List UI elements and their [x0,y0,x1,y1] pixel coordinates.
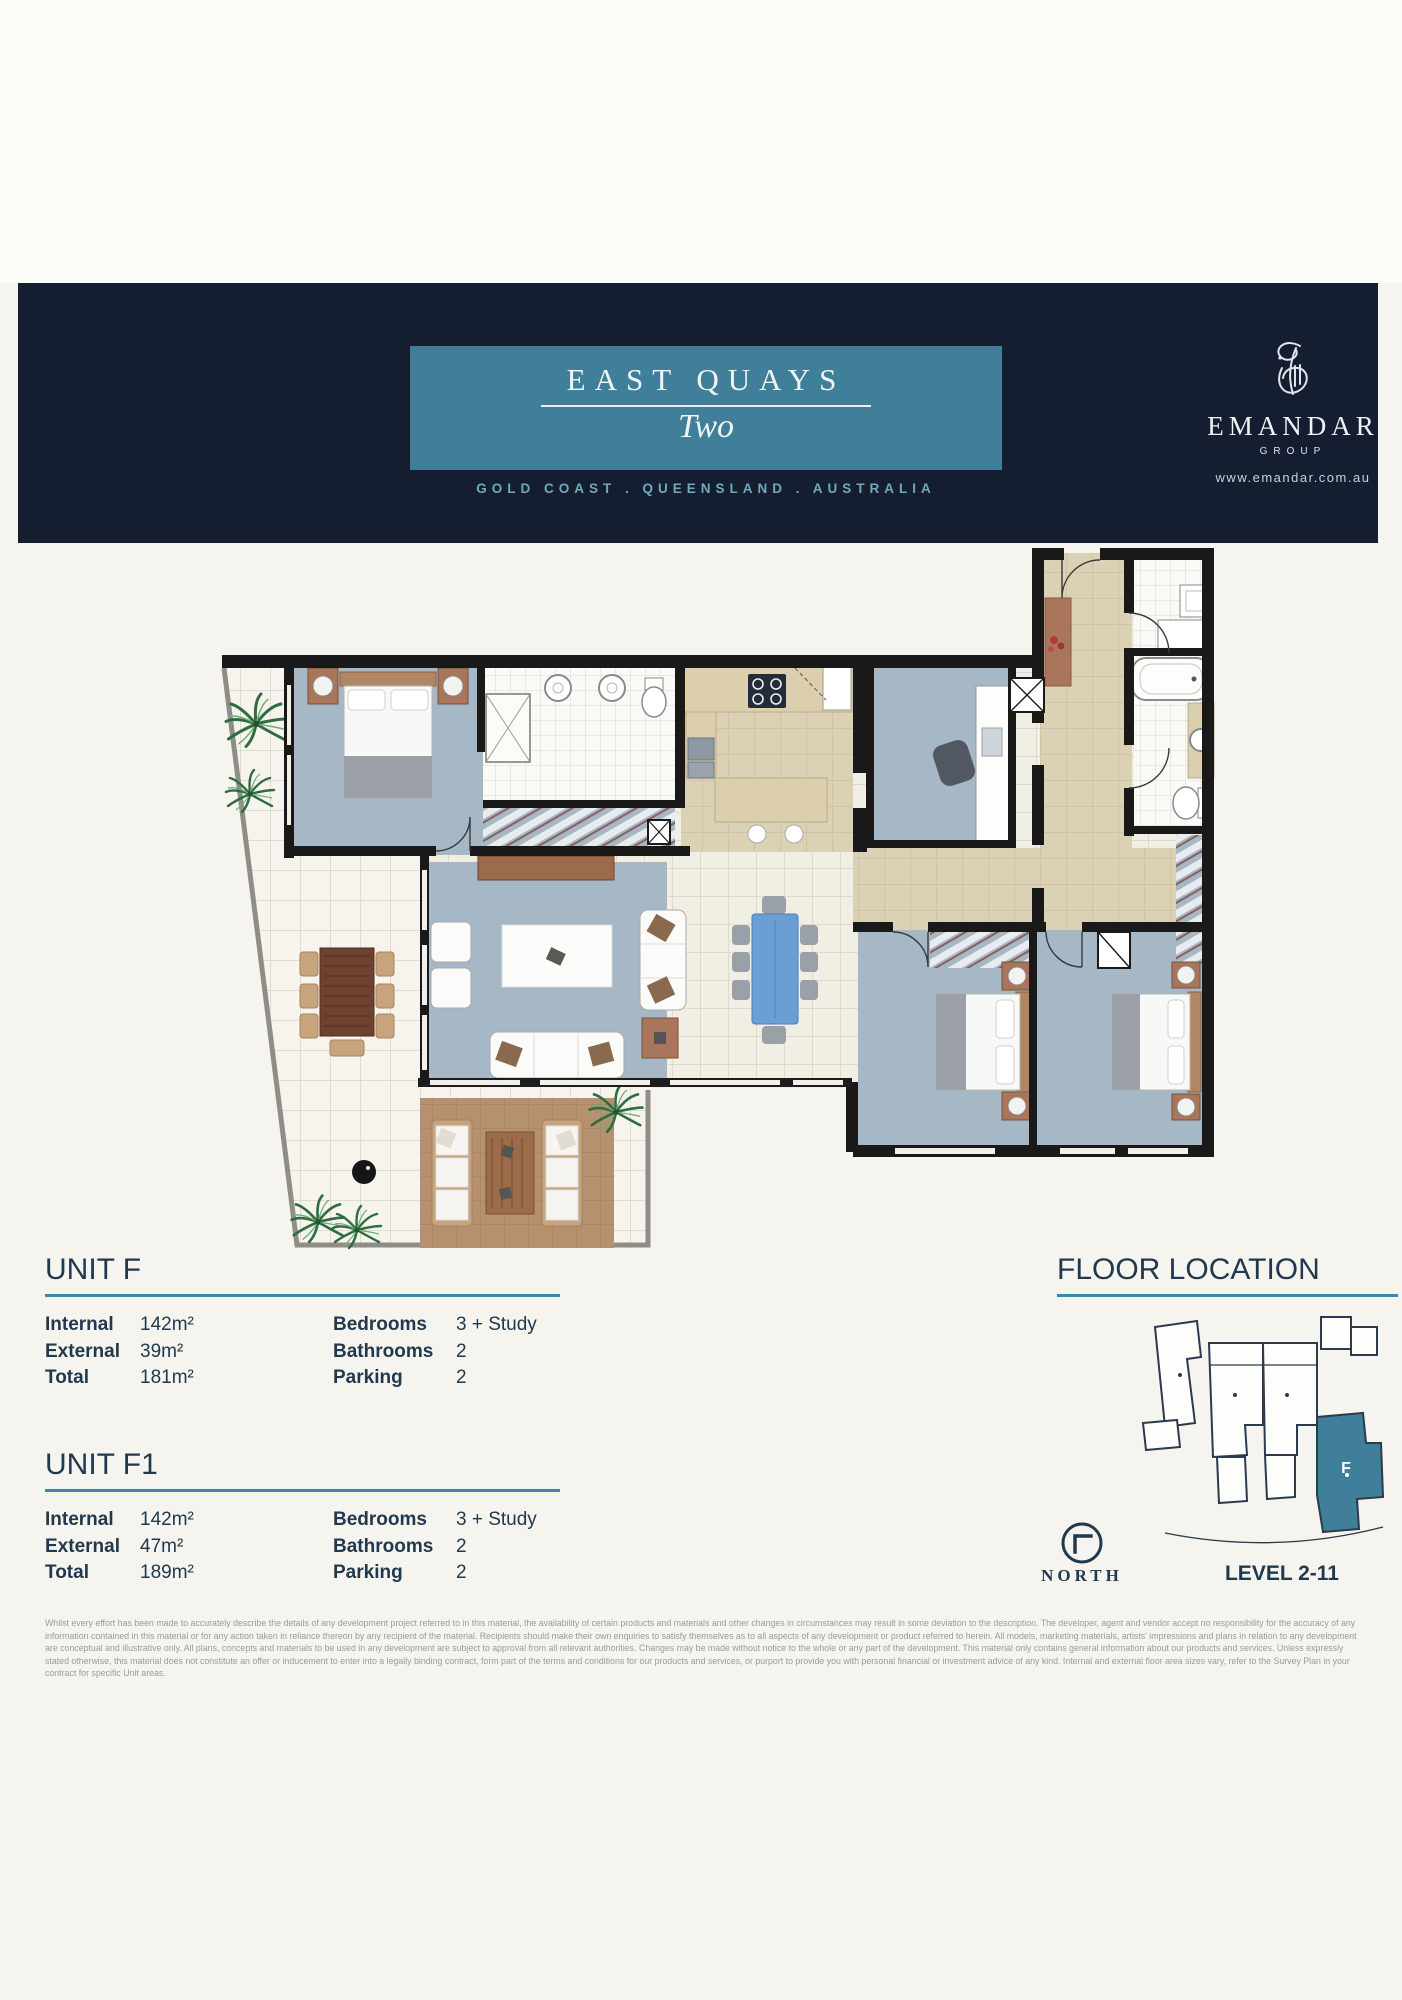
spec-row: Internal 142m² [45,1312,333,1339]
unit-f-section: UNIT F Internal 142m² External 39m² Tota… [45,1253,560,1392]
stool [748,825,766,843]
unit-f1-heading: UNIT F1 [45,1448,560,1482]
spec-row: Parking 2 [333,1560,560,1587]
spec-value: 142m² [140,1312,194,1339]
spec-label: External [45,1339,140,1366]
cooktop [748,674,786,708]
title-underline [541,405,871,407]
developer-website: www.emandar.com.au [1198,470,1388,485]
tv-cabinet [478,856,614,880]
spec-row: Bathrooms 2 [333,1339,560,1366]
spec-value: 39m² [140,1339,183,1366]
floor-location-section: FLOOR LOCATION [1057,1253,1398,1297]
spec-row: Total 189m² [45,1560,333,1587]
spec-label: Parking [333,1560,456,1587]
spec-row: Parking 2 [333,1365,560,1392]
spec-row: Internal 142m² [45,1507,333,1534]
toilet [1173,787,1199,819]
spec-row: Bedrooms 3 + Study [333,1312,560,1339]
spec-label: Bedrooms [333,1312,456,1339]
spec-value: 2 [456,1339,467,1366]
round-side-table [352,1160,376,1184]
spec-label: Bathrooms [333,1339,456,1366]
spec-row: External 47m² [45,1534,333,1561]
emandar-monogram-icon [1266,338,1320,400]
spec-row: External 39m² [45,1339,333,1366]
unit-f-heading: UNIT F [45,1253,560,1287]
project-subtitle: Two [410,409,1002,445]
north-label: NORTH [1032,1566,1132,1586]
spec-label: Internal [45,1507,140,1534]
spec-row: Bathrooms 2 [333,1534,560,1561]
developer-group-label: GROUP [1198,446,1388,457]
spec-value: 3 + Study [456,1312,537,1339]
spec-value: 2 [456,1534,467,1561]
spec-value: 181m² [140,1365,194,1392]
spec-value: 2 [456,1365,467,1392]
level-label: LEVEL 2-11 [1212,1562,1352,1586]
developer-name: EMANDAR [1198,411,1388,442]
disclaimer-text: Whilst every effort has been made to acc… [45,1617,1367,1680]
stool [785,825,803,843]
spec-label: External [45,1534,140,1561]
floor-plate-diagram: F [1125,1305,1395,1560]
outdoor-lounge-area [420,1098,614,1248]
floor-location-heading: FLOOR LOCATION [1057,1253,1398,1287]
outdoor-coffee-table [486,1132,534,1214]
armchair [431,968,471,1008]
master-robe [483,808,675,846]
page-top-margin [0,0,1402,283]
floor-location-rule [1057,1294,1398,1297]
spec-label: Bathrooms [333,1534,456,1561]
pantry-fridge [823,666,851,710]
spec-value: 2 [456,1560,467,1587]
north-indicator-icon [1059,1520,1105,1566]
spec-value: 189m² [140,1560,194,1587]
spec-label: Total [45,1560,140,1587]
project-title-panel: EAST QUAYS Two [410,346,1002,470]
unit-f-rule [45,1294,560,1297]
header-banner: EAST QUAYS Two GOLD COAST . QUEENSLAND .… [18,283,1378,543]
spec-row: Bedrooms 3 + Study [333,1507,560,1534]
entry-bench [1045,598,1071,686]
unit-f1-rule [45,1489,560,1492]
spec-value: 47m² [140,1534,183,1561]
armchair [431,922,471,962]
project-title: EAST QUAYS [410,362,1002,398]
spec-row: Total 181m² [45,1365,333,1392]
spec-value: 142m² [140,1507,194,1534]
developer-logo: EMANDAR GROUP www.emandar.com.au [1198,338,1388,485]
floor-plan-illustration [200,545,1230,1270]
project-location: GOLD COAST . QUEENSLAND . AUSTRALIA [410,481,1002,496]
spec-label: Bedrooms [333,1507,456,1534]
spec-value: 3 + Study [456,1507,537,1534]
spec-label: Total [45,1365,140,1392]
spec-label: Internal [45,1312,140,1339]
spec-label: Parking [333,1365,456,1392]
unit-f1-section: UNIT F1 Internal 142m² External 47m² Tot… [45,1448,560,1587]
kitchen-island [715,778,827,822]
